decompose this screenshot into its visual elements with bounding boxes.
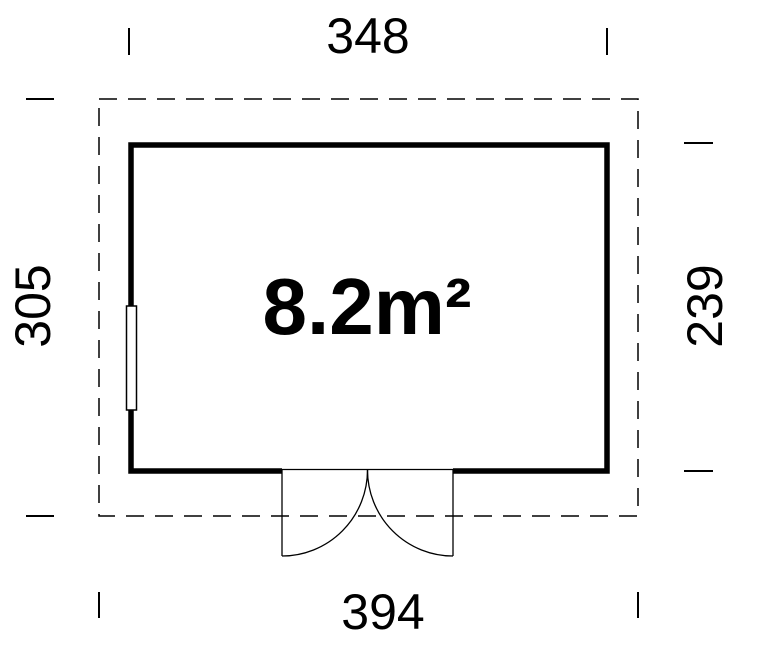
dimension-top-label: 348 (326, 11, 409, 61)
window (127, 306, 137, 410)
door-swing-arc-left (282, 470, 368, 556)
floor-area-label: 8.2m² (263, 267, 472, 347)
door-swing-arc-right (367, 470, 453, 556)
dimension-left-label: 305 (8, 264, 58, 347)
dimension-bottom-label: 394 (341, 587, 424, 637)
dimension-right-label: 239 (680, 264, 730, 347)
floor-plan-canvas: 348 394 305 239 8.2m² (0, 0, 766, 660)
